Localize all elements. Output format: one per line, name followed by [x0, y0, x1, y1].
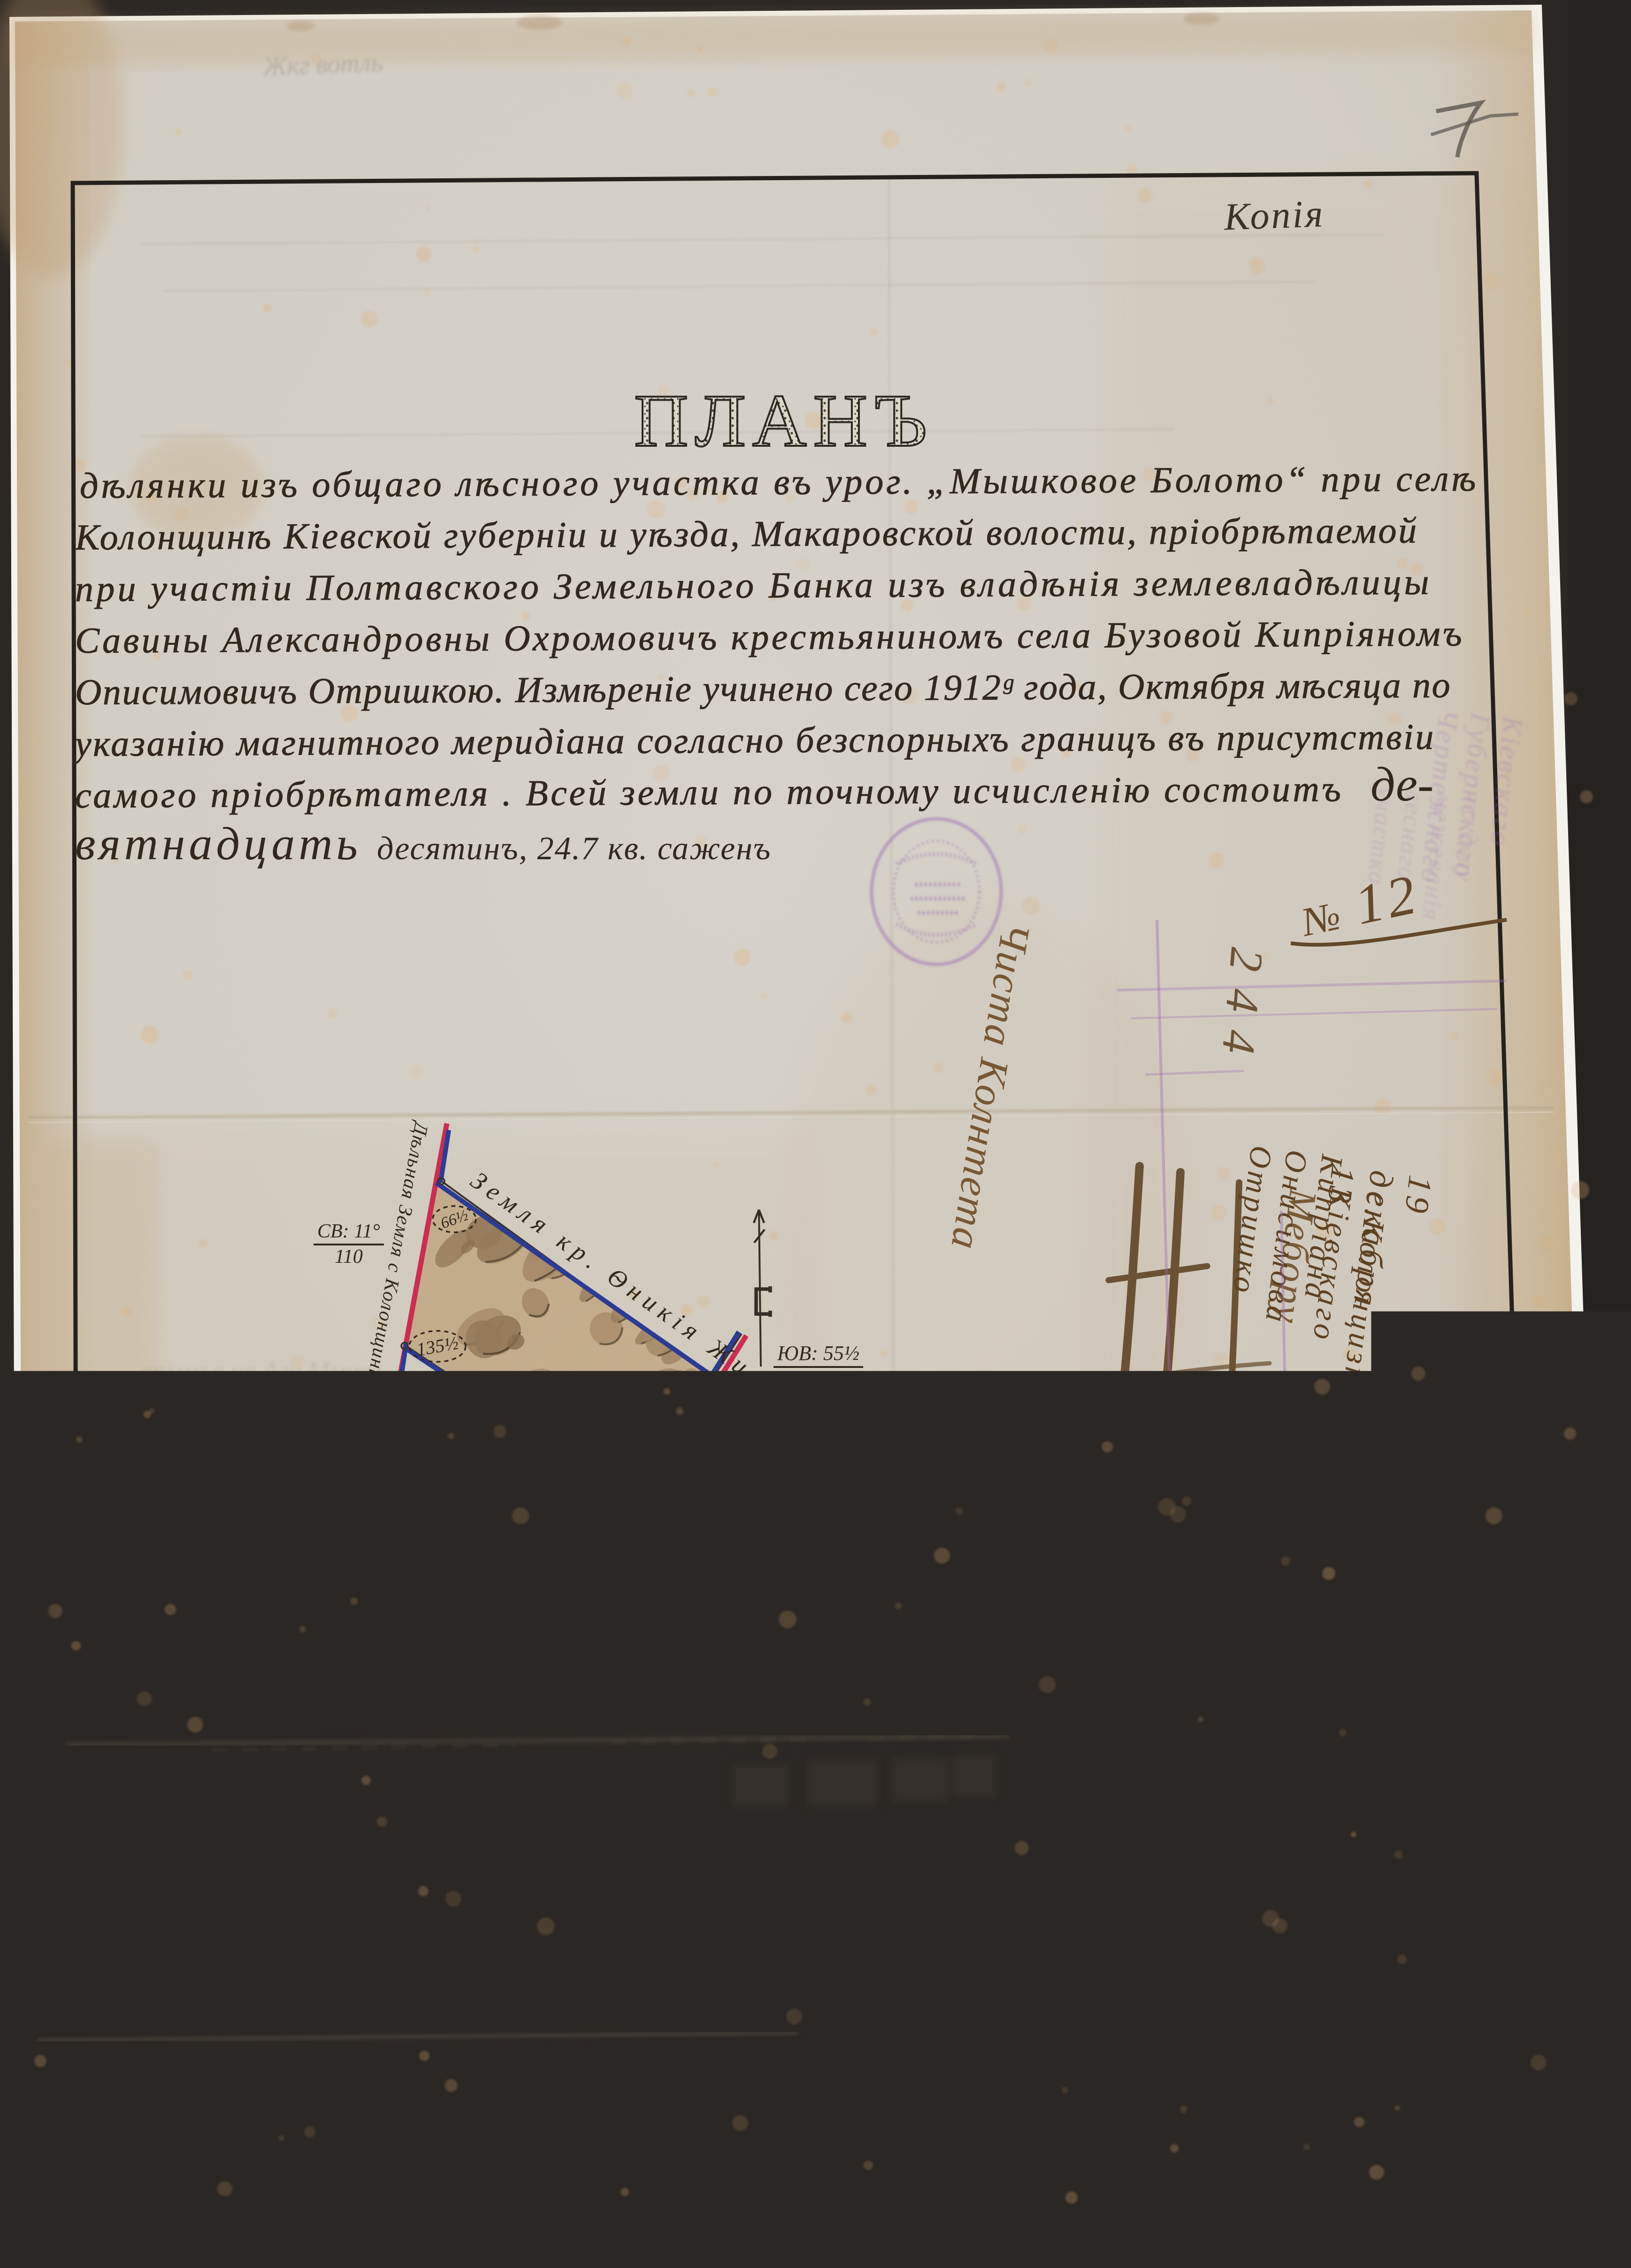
- svg-text:200: 200: [754, 2011, 779, 2030]
- svg-text:126½: 126½: [838, 1672, 883, 1701]
- svg-text:2: 2: [312, 1978, 319, 1993]
- svg-text:6: 6: [312, 1904, 319, 1919]
- svg-text:223°: 223°: [986, 1593, 1025, 1619]
- svg-text:6: 6: [312, 1920, 319, 1936]
- svg-text:4: 4: [312, 1945, 319, 1960]
- svg-text:66½: 66½: [438, 1207, 471, 1232]
- svg-text:100: 100: [618, 2011, 643, 2030]
- svg-text:0: 0: [479, 2011, 487, 2030]
- svg-text:100: 100: [317, 2011, 343, 2030]
- svg-text:50: 50: [436, 2011, 453, 2030]
- svg-text:300: 300: [897, 2011, 923, 2030]
- svg-text:8: 8: [312, 1888, 319, 1904]
